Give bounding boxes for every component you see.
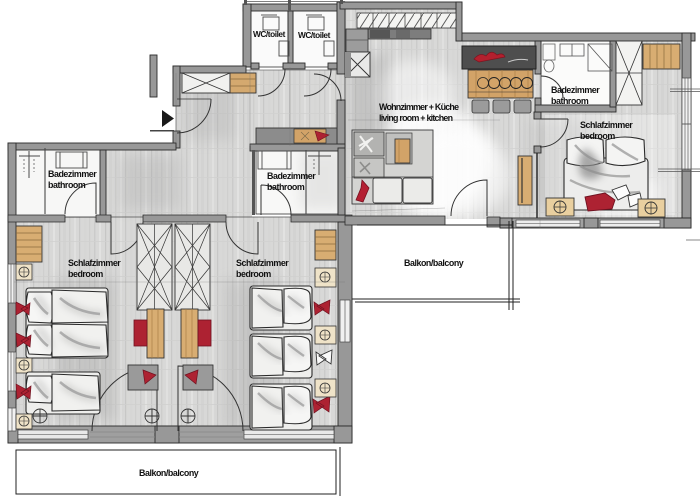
svg-text:bedroom: bedroom	[580, 131, 615, 141]
svg-text:bedroom: bedroom	[68, 269, 103, 279]
svg-text:living room + kitchen: living room + kitchen	[379, 113, 453, 123]
svg-text:Badezimmer: Badezimmer	[48, 169, 97, 179]
svg-text:Balkon/balcony: Balkon/balcony	[404, 258, 464, 268]
svg-text:Badezimmer: Badezimmer	[267, 171, 316, 181]
svg-text:WC/toilet: WC/toilet	[253, 29, 286, 39]
svg-text:Schlafzimmer: Schlafzimmer	[580, 120, 633, 130]
svg-text:bathroom: bathroom	[551, 96, 589, 106]
svg-text:bathroom: bathroom	[267, 182, 305, 192]
svg-text:Schlafzimmer: Schlafzimmer	[68, 258, 121, 268]
svg-text:Badezimmer: Badezimmer	[551, 85, 600, 95]
svg-text:Schlafzimmer: Schlafzimmer	[236, 258, 289, 268]
svg-text:WC/toilet: WC/toilet	[298, 30, 331, 40]
svg-text:Wohnzimmer + Küche: Wohnzimmer + Küche	[379, 102, 459, 112]
svg-text:bathroom: bathroom	[48, 180, 86, 190]
svg-text:bedroom: bedroom	[236, 269, 271, 279]
svg-text:Balkon/balcony: Balkon/balcony	[139, 468, 199, 478]
